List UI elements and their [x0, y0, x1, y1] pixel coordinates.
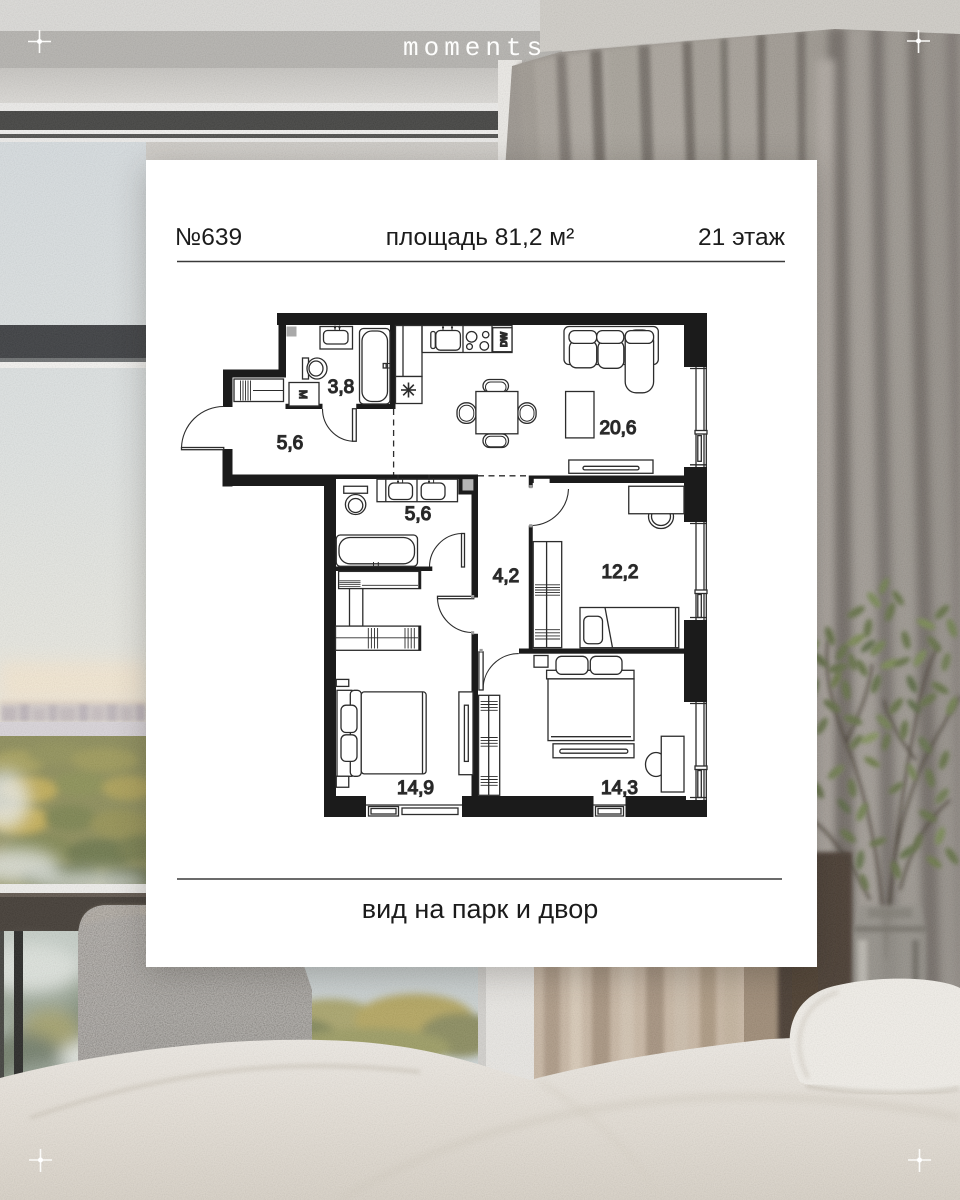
svg-text:3,8: 3,8: [328, 377, 354, 398]
svg-text:M: M: [297, 390, 309, 399]
svg-text:14,3: 14,3: [601, 778, 638, 799]
svg-text:12,2: 12,2: [602, 562, 639, 583]
svg-text:14,9: 14,9: [397, 778, 434, 799]
svg-text:4,2: 4,2: [493, 566, 519, 587]
svg-text:5,6: 5,6: [405, 504, 431, 525]
svg-text:вид на парк и двор: вид на парк и двор: [362, 894, 599, 924]
svg-text:DW: DW: [499, 332, 509, 347]
svg-text:5,6: 5,6: [277, 433, 303, 454]
svg-text:20,6: 20,6: [600, 418, 637, 439]
